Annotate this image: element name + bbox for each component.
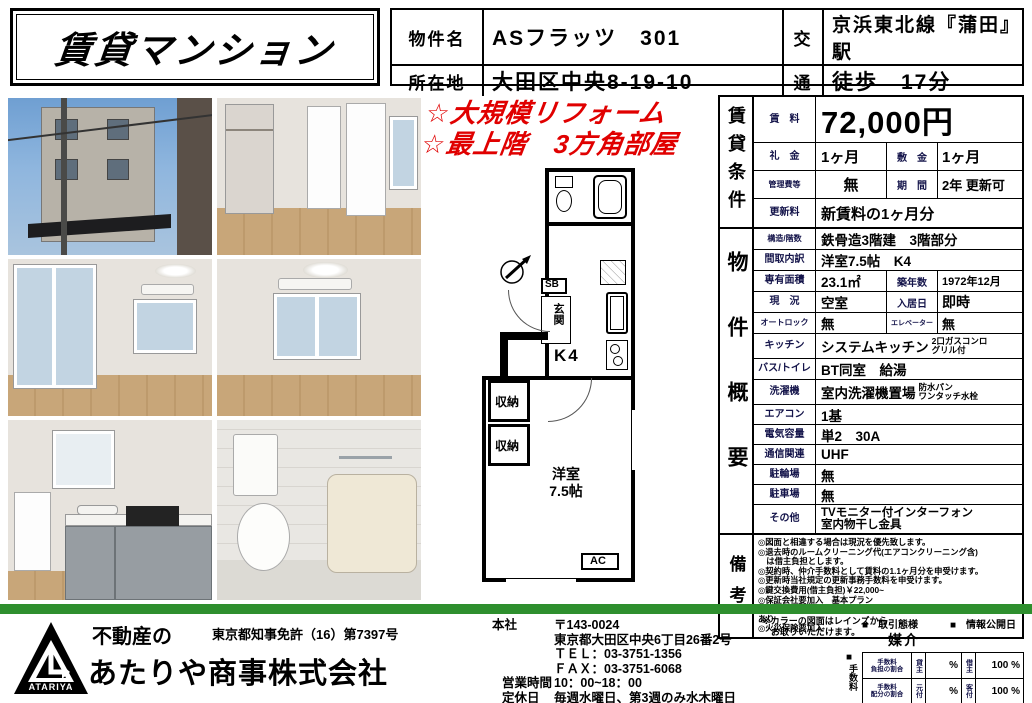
kitchen-value: システムキッチン2口ガスコンロ グリル付 xyxy=(816,334,1022,358)
transport-label-bottom: 通 xyxy=(782,64,822,96)
fee-row1-value1: % xyxy=(925,653,961,678)
rental-conditions-section: 賃貸条件 賃 料 72,000円 礼 金 1ヶ月 敷 金 1ヶ月 管理費等 無 … xyxy=(720,97,1022,229)
transaction-type-marker: ■ 取引態様 xyxy=(862,616,918,631)
area-label: 専有面積 xyxy=(754,271,816,291)
telecom-value: UHF xyxy=(816,445,1022,464)
title-box: 賃貸マンション xyxy=(10,8,380,86)
gas-stove xyxy=(126,506,179,526)
closed-value: 毎週水曜日、第3週のみ水木曜日 xyxy=(554,691,736,703)
electric-label: 電気容量 xyxy=(754,425,816,444)
bathtub xyxy=(327,474,417,573)
bicycle-value: 無 xyxy=(816,465,1022,484)
hours-label: 営業時間 xyxy=(492,676,554,691)
company-logo: ATARIYA xyxy=(12,620,90,698)
remark-line: ◎退去時のルームクリーニング代(エアコンクリーニング含) は借主負担とします。 xyxy=(758,548,1018,567)
room-door xyxy=(307,106,342,210)
floorplan-bathroom xyxy=(549,172,631,226)
property-name-value: ASフラッツ 301 xyxy=(482,10,782,64)
entrance-door xyxy=(346,103,387,216)
fee-row1-party2: 借主 xyxy=(961,653,975,678)
title-inner-border: 賃貸マンション xyxy=(16,14,374,80)
aircon-label: エアコン xyxy=(754,405,816,424)
company-name: あたりや商事株式会社 xyxy=(88,650,388,692)
fp-room-door-arc xyxy=(548,378,592,422)
green-divider-bar xyxy=(0,604,1032,614)
ac-unit xyxy=(141,284,194,295)
transport-line-value: 京浜東北線『蒲田』駅 xyxy=(822,10,1022,64)
fp-toilet-tank xyxy=(555,176,573,188)
other-label: その他 xyxy=(754,505,816,533)
structure-value: 鉄骨造3階建 3階部分 xyxy=(816,229,1022,249)
ceiling-light xyxy=(303,262,348,278)
rental-conditions-section-label: 賃貸条件 xyxy=(720,97,754,227)
closed-label: 定休日 xyxy=(492,691,554,703)
fee-table: 手数料 負担の割合 貸主 % 借主 100 % 手数料 配分の割合 元付 % 客… xyxy=(862,652,1024,703)
fee-row2-party1: 元付 xyxy=(911,678,925,703)
transport-walk-value: 徒歩 17分 xyxy=(822,64,1022,96)
footer: ATARIYA 不動産の 東京都知事免許（16）第7397号 あたりや商事株式会… xyxy=(0,614,1032,703)
fp-room-label: 洋室 7.5帖 xyxy=(536,466,596,500)
fee-marker: ■ xyxy=(846,652,852,663)
mgmt-fee-label: 管理費等 xyxy=(754,171,816,198)
aircon-value: 1基 xyxy=(816,405,1022,424)
rent-value: 72,000円 xyxy=(816,97,1022,142)
fee-row1-value2: 100 % xyxy=(975,653,1023,678)
rental-flyer: 賃貸マンション 物件名 ASフラッツ 301 交 京浜東北線『蒲田』駅 所在地 … xyxy=(0,0,1032,703)
kitchen-cabinets xyxy=(65,526,212,600)
tel-number: ＴＥＬ：03-3751-1356 xyxy=(554,647,736,662)
property-header-table: 物件名 ASフラッツ 301 交 京浜東北線『蒲田』駅 所在地 大田区中央8-1… xyxy=(390,8,1024,86)
highlight-text: ☆大規模リフォーム ☆最上階 3方角部屋 xyxy=(420,98,684,160)
ac-unit xyxy=(278,278,351,291)
address-value: 大田区中央8-19-10 xyxy=(482,64,782,96)
fee-row2-label: 手数料 配分の割合 xyxy=(863,678,911,703)
side-window xyxy=(390,117,417,189)
period-label: 期 間 xyxy=(886,171,938,198)
transaction-type-value: 媒介 xyxy=(888,630,920,650)
move-in-value: 即時 xyxy=(938,292,1022,312)
fee-row2-value2: 100 % xyxy=(975,678,1023,703)
electric-value: 単2 30A xyxy=(816,425,1022,444)
built-year-label: 築年数 xyxy=(886,271,938,291)
postal-code: 〒143-0024 xyxy=(554,618,736,633)
area-value: 23.1㎡ xyxy=(816,271,886,291)
fp-window-right xyxy=(631,410,635,470)
laundry-label: 洗濯機 xyxy=(754,380,816,404)
deposit-value: 1ヶ月 xyxy=(938,143,1022,170)
page-title: 賃貸マンション xyxy=(52,20,338,74)
compass-icon xyxy=(498,252,532,286)
fp-counter-hatch xyxy=(600,260,626,285)
conditions-panel: 賃貸条件 賃 料 72,000円 礼 金 1ヶ月 敷 金 1ヶ月 管理費等 無 … xyxy=(718,95,1024,639)
wood-floor xyxy=(217,375,421,416)
photo-window-view xyxy=(8,259,212,416)
transport-label-top: 交 xyxy=(782,10,822,64)
open-window xyxy=(14,265,96,387)
fp-storage-1: 収納 xyxy=(488,380,530,422)
room-window xyxy=(274,294,360,360)
fp-bathtub xyxy=(593,175,627,219)
photo-kitchen xyxy=(8,420,212,600)
telecom-label: 通信関連 xyxy=(754,445,816,464)
mgmt-fee-value: 無 xyxy=(816,171,886,198)
wood-floor xyxy=(8,571,69,600)
company-prefix: 不動産の xyxy=(92,620,172,649)
property-name-label: 物件名 xyxy=(392,10,482,64)
parking-label: 駐車場 xyxy=(754,485,816,504)
autolock-value: 無 xyxy=(816,313,886,333)
fp-ac-box: AC xyxy=(581,553,619,570)
period-value: 2年 更新可 xyxy=(938,171,1022,198)
elevator-value: 無 xyxy=(938,313,1022,333)
laundry-value: 室内洗濯機置場防水パン ワンタッチ水栓 xyxy=(816,380,1022,404)
fp-storage-2: 収納 xyxy=(488,424,530,466)
adjacent-building xyxy=(177,98,212,255)
renewal-fee-label: 更新料 xyxy=(754,199,816,227)
autolock-label: オートロック xyxy=(754,313,816,333)
other-value: TVモニター付インターフォン 室内物干し金具 xyxy=(816,505,1022,533)
structure-label: 構造/階数 xyxy=(754,229,816,249)
info-date-marker: ■ 情報公開日 xyxy=(950,616,1016,631)
layout-label: 間取内訳 xyxy=(754,250,816,270)
photo-building-exterior xyxy=(8,98,212,255)
kitchen-label: キッチン xyxy=(754,334,816,358)
elevator-label: エレベーター xyxy=(886,313,938,333)
photo-room-window xyxy=(217,259,421,416)
photo-room-closet xyxy=(217,98,421,255)
key-money-value: 1ヶ月 xyxy=(816,143,886,170)
fp-entrance-door-arc xyxy=(508,290,550,332)
license-number: 東京都知事免許（16）第7397号 xyxy=(212,624,398,643)
fee-row1-party1: 貸主 xyxy=(911,653,925,678)
rent-label: 賃 料 xyxy=(754,97,816,142)
floor-plan: SB 玄関 K4 洋室 7.5帖 AC 収納 xyxy=(442,160,652,602)
fp-stove xyxy=(606,340,628,370)
deposit-label: 敷 金 xyxy=(886,143,938,170)
bath-toilet-value: BT同室 給湯 xyxy=(816,359,1022,379)
move-in-label: 入居日 xyxy=(886,292,938,312)
key-money-label: 礼 金 xyxy=(754,143,816,170)
toilet-tank xyxy=(233,434,278,495)
ceiling-light xyxy=(155,264,196,278)
head-office-block: 本社 〒143-0024 東京都大田区中央6丁目26番2号 ＴＥＬ：03-375… xyxy=(492,618,736,703)
wood-floor xyxy=(217,208,421,255)
status-value: 空室 xyxy=(816,292,886,312)
parking-value: 無 xyxy=(816,485,1022,504)
logo-wordmark: ATARIYA xyxy=(12,682,90,692)
property-overview-section-label: 物件概要 xyxy=(720,229,754,533)
fee-row1-label: 手数料 負担の割合 xyxy=(863,653,911,678)
bicycle-label: 駐輪場 xyxy=(754,465,816,484)
fee-row2-value1: % xyxy=(925,678,961,703)
fee-label: 手数料 xyxy=(847,664,860,691)
head-office-address: 東京都大田区中央6丁目26番2号 xyxy=(554,633,736,648)
fp-window-bottom xyxy=(506,578,576,582)
renewal-fee-value: 新賃料の1ヶ月分 xyxy=(816,199,1022,227)
fp-sink xyxy=(606,292,628,334)
built-year-value: 1972年12月 xyxy=(938,271,1022,291)
address-label: 所在地 xyxy=(392,64,482,96)
fp-wall-segment xyxy=(500,332,508,380)
fax-number: ＦＡＸ：03-3751-6068 xyxy=(554,662,736,677)
fee-row2-party2: 客付 xyxy=(961,678,975,703)
property-overview-section: 物件概要 構造/階数鉄骨造3階建 3階部分 間取内訳洋室7.5帖 K4 専有面積… xyxy=(720,229,1022,535)
status-label: 現 況 xyxy=(754,292,816,312)
open-closet xyxy=(225,104,274,214)
photo-bathroom xyxy=(217,420,421,600)
head-office-label: 本社 xyxy=(492,618,554,633)
shower-bar xyxy=(339,456,392,459)
layout-value: 洋室7.5帖 K4 xyxy=(816,250,1022,270)
far-window xyxy=(134,300,195,353)
hours-value: 10：00~18：00 xyxy=(554,676,736,691)
washer-space xyxy=(14,492,51,571)
fp-toilet-bowl xyxy=(556,190,572,212)
fp-kitchen-label: K4 xyxy=(554,346,580,366)
kitchen-window xyxy=(53,431,114,489)
bath-toilet-label: バス/トイレ xyxy=(754,359,816,379)
sink xyxy=(77,505,118,516)
utility-pole xyxy=(61,98,67,255)
